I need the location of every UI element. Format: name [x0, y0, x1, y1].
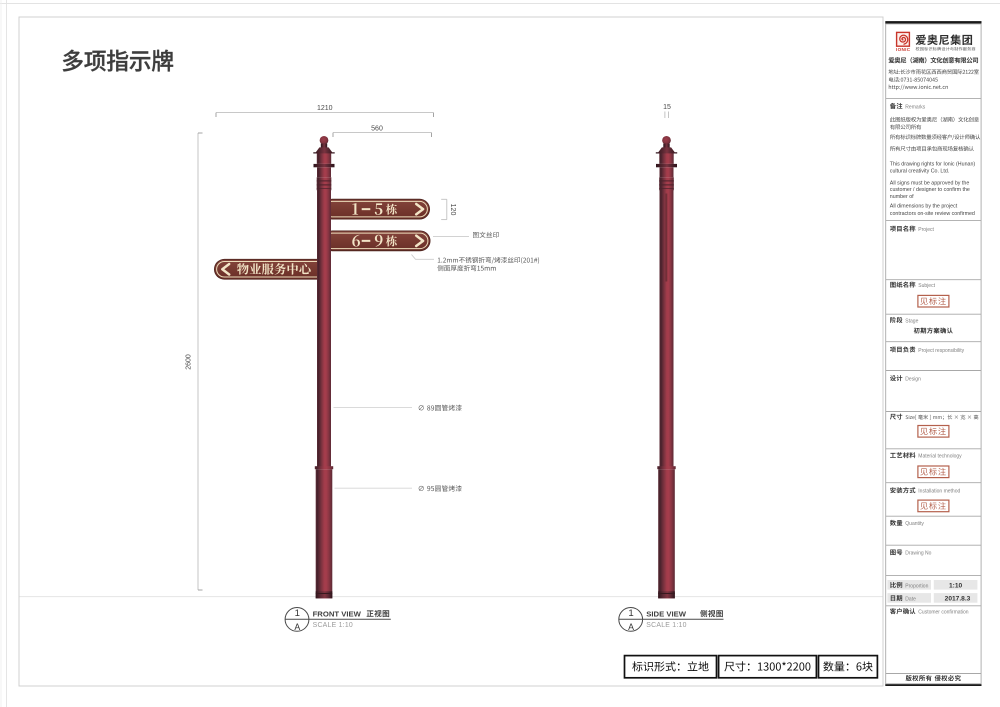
svg-text:1:10: 1:10 [949, 582, 963, 589]
svg-text:Drawing No: Drawing No [905, 551, 931, 557]
svg-text:1: 1 [628, 608, 633, 619]
svg-text:15: 15 [663, 104, 671, 111]
svg-text:1: 1 [295, 608, 300, 619]
svg-text:Design: Design [905, 377, 921, 383]
svg-text:120: 120 [449, 204, 456, 216]
svg-text:Project responsibility: Project responsibility [918, 348, 964, 354]
svg-text:Proportion: Proportion [905, 583, 928, 589]
svg-text:contractors on-site review con: contractors on-site review confirmed [890, 211, 975, 217]
svg-text:Date: Date [905, 596, 916, 602]
svg-text:All signs must be approved by: All signs must be approved by the [890, 180, 970, 186]
svg-text:1210: 1210 [317, 105, 333, 112]
svg-text:560: 560 [371, 125, 383, 132]
svg-text:This drawing rights for Ionic: This drawing rights for Ionic (Hunan) [890, 162, 976, 168]
svg-text:Quantity: Quantity [905, 521, 924, 527]
svg-text:Remarks: Remarks [905, 104, 926, 110]
svg-text:customer / designer to confirm: customer / designer to confirm the [890, 187, 970, 193]
svg-text:cultural creativity Co. Ltd.: cultural creativity Co. Ltd. [890, 169, 949, 175]
svg-text:Subject: Subject [918, 283, 935, 289]
svg-text:Installation method: Installation method [918, 489, 960, 495]
svg-text:2017.8.3: 2017.8.3 [945, 596, 971, 603]
svg-text:FRONT VIEW: FRONT VIEW [313, 609, 362, 618]
svg-text:SIDE VIEW: SIDE VIEW [646, 609, 686, 618]
svg-text:SCALE 1:10: SCALE 1:10 [646, 622, 686, 629]
svg-text:A: A [294, 622, 300, 632]
svg-text:Customer confirmation: Customer confirmation [918, 610, 969, 616]
svg-text:SCALE 1:10: SCALE 1:10 [313, 622, 353, 629]
svg-text:number of: number of [890, 194, 914, 200]
svg-text:2600: 2600 [185, 354, 192, 370]
svg-text:All dimensions by the project: All dimensions by the project [890, 204, 958, 210]
svg-text:Stage: Stage [905, 318, 918, 324]
svg-text:IONIC: IONIC [896, 47, 911, 52]
svg-text:Material technology: Material technology [918, 454, 962, 460]
svg-text:A: A [628, 622, 634, 632]
svg-text:Project: Project [918, 227, 934, 233]
